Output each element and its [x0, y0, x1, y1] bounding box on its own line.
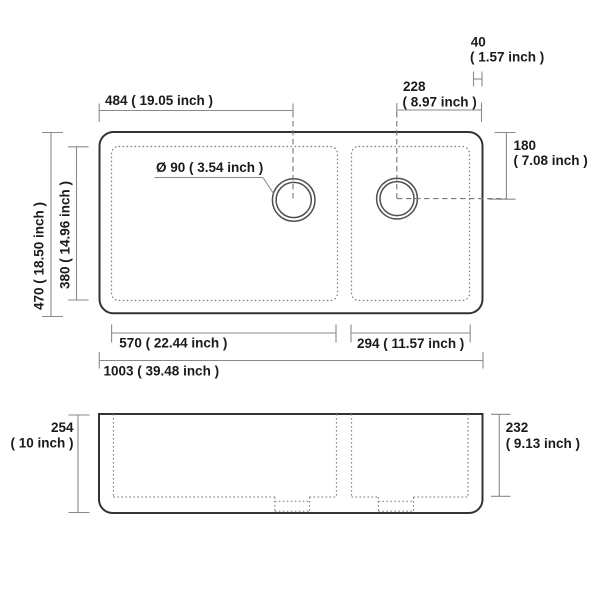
svg-text:470 ( 18.50 inch ): 470 ( 18.50 inch ) [32, 202, 47, 310]
svg-text:484 ( 19.05 inch ): 484 ( 19.05 inch ) [105, 93, 213, 108]
svg-text:1003 ( 39.48 inch ): 1003 ( 39.48 inch ) [104, 364, 220, 379]
svg-text:180: 180 [514, 138, 537, 153]
svg-text:( 10 inch ): ( 10 inch ) [10, 436, 73, 451]
svg-text:380 ( 14.96 inch ): 380 ( 14.96 inch ) [58, 181, 73, 289]
svg-text:40: 40 [471, 35, 486, 50]
svg-text:( 9.13 inch ): ( 9.13 inch ) [506, 436, 580, 451]
svg-text:228: 228 [403, 79, 426, 94]
svg-text:Ø 90 ( 3.54 inch ): Ø 90 ( 3.54 inch ) [156, 160, 263, 175]
svg-text:( 1.57 inch ): ( 1.57 inch ) [470, 50, 544, 65]
svg-text:570 ( 22.44 inch ): 570 ( 22.44 inch ) [119, 336, 227, 351]
svg-text:( 8.97 inch ): ( 8.97 inch ) [403, 94, 477, 109]
svg-text:294 ( 11.57 inch ): 294 ( 11.57 inch ) [357, 336, 464, 351]
svg-text:232: 232 [506, 420, 529, 435]
svg-text:( 7.08 inch ): ( 7.08 inch ) [514, 153, 588, 168]
svg-text:254: 254 [51, 420, 74, 435]
